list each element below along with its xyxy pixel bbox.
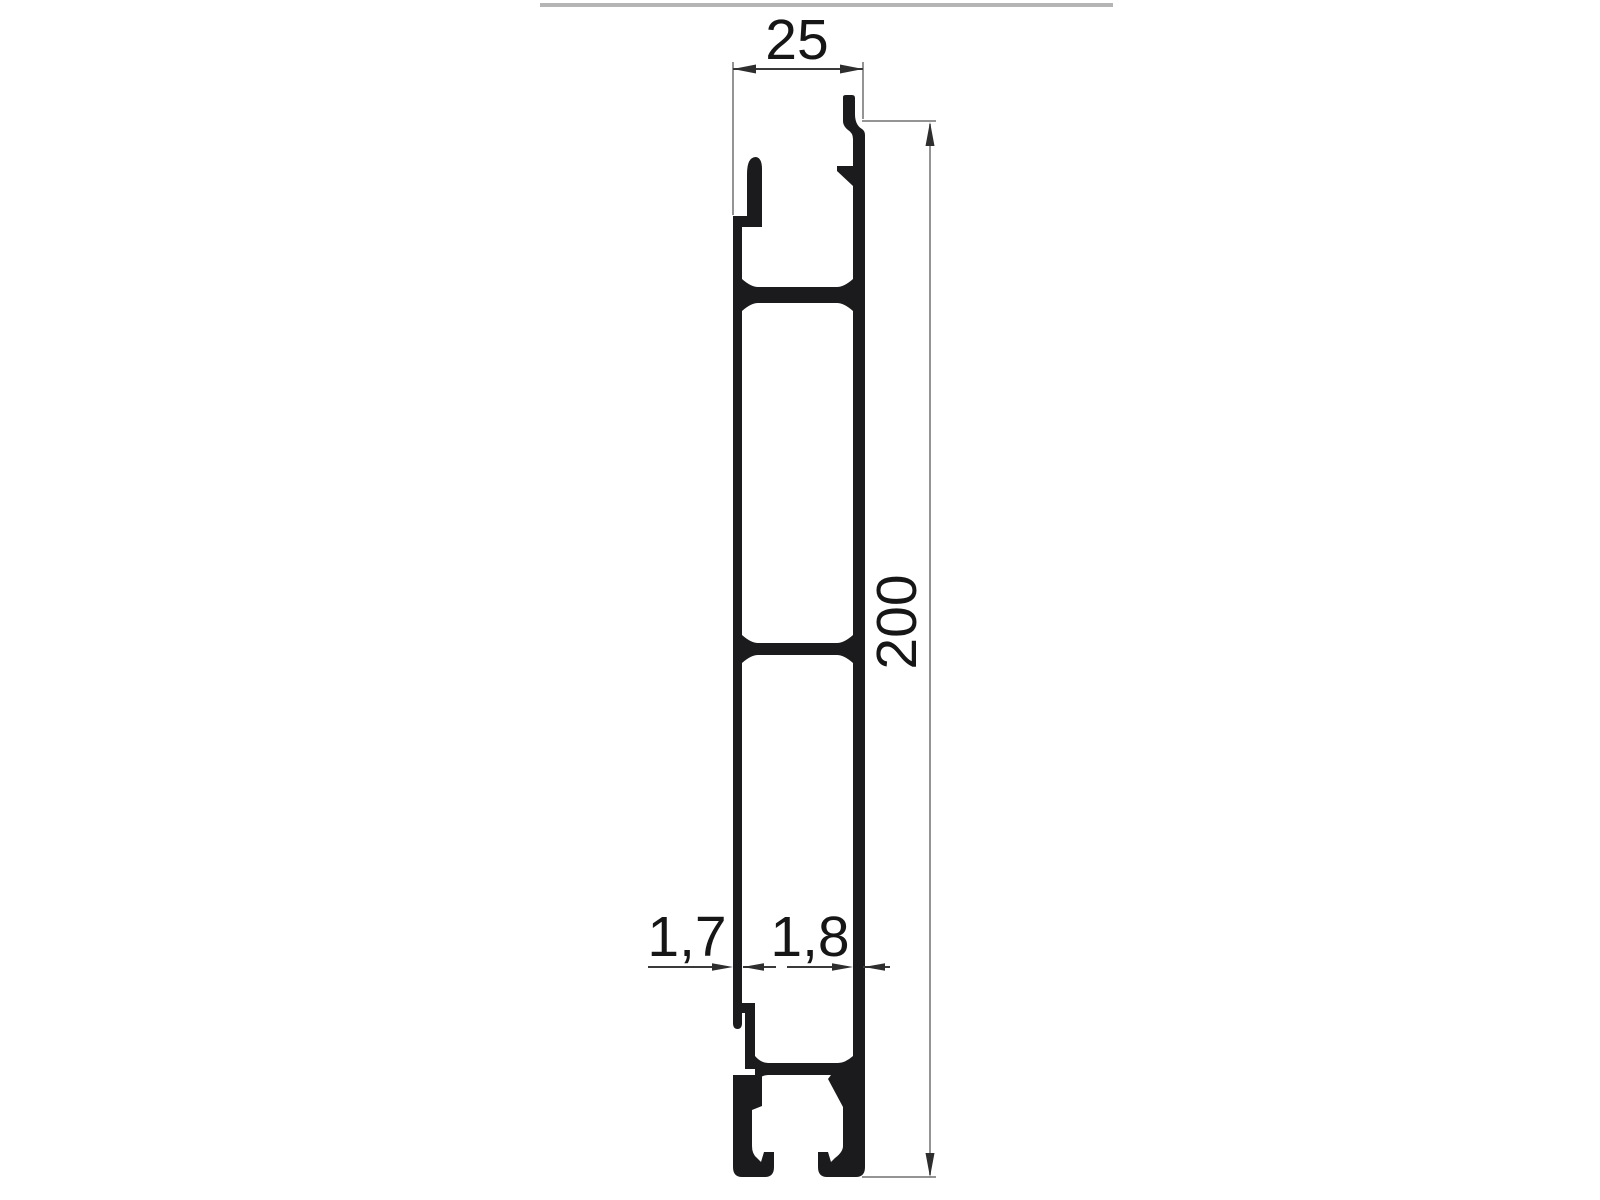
wall-thickness-right-label: 1,8 [770, 905, 849, 969]
profile-bottom-left-leg [733, 1075, 774, 1177]
profile-left-inner-bar [742, 1003, 755, 1069]
dimension-labels: 25 200 1,7 1,8 [647, 8, 929, 969]
width-arrow-left [733, 65, 756, 74]
height-dimension-label: 200 [865, 574, 929, 669]
profile-top-left-hook [747, 157, 762, 216]
profile-right-wall [818, 95, 865, 1177]
profile-crossbar-middle [742, 635, 853, 663]
width-dimension-label: 25 [765, 8, 828, 72]
height-arrow-bottom [926, 1153, 935, 1177]
wall-thickness-left-label: 1,7 [647, 905, 726, 969]
technical-drawing-page: 25 200 1,7 1,8 [0, 0, 1600, 1200]
height-arrow-top [926, 122, 935, 146]
wall-left-arrow-inner [743, 963, 764, 971]
profile-drawing: 25 200 1,7 1,8 [0, 0, 1600, 1200]
profile-cross-section [733, 95, 865, 1177]
width-arrow-right [840, 65, 863, 74]
profile-left-wall [733, 216, 762, 1029]
profile-crossbar-upper [742, 279, 853, 311]
wall-right-arrow-outer [864, 963, 885, 971]
